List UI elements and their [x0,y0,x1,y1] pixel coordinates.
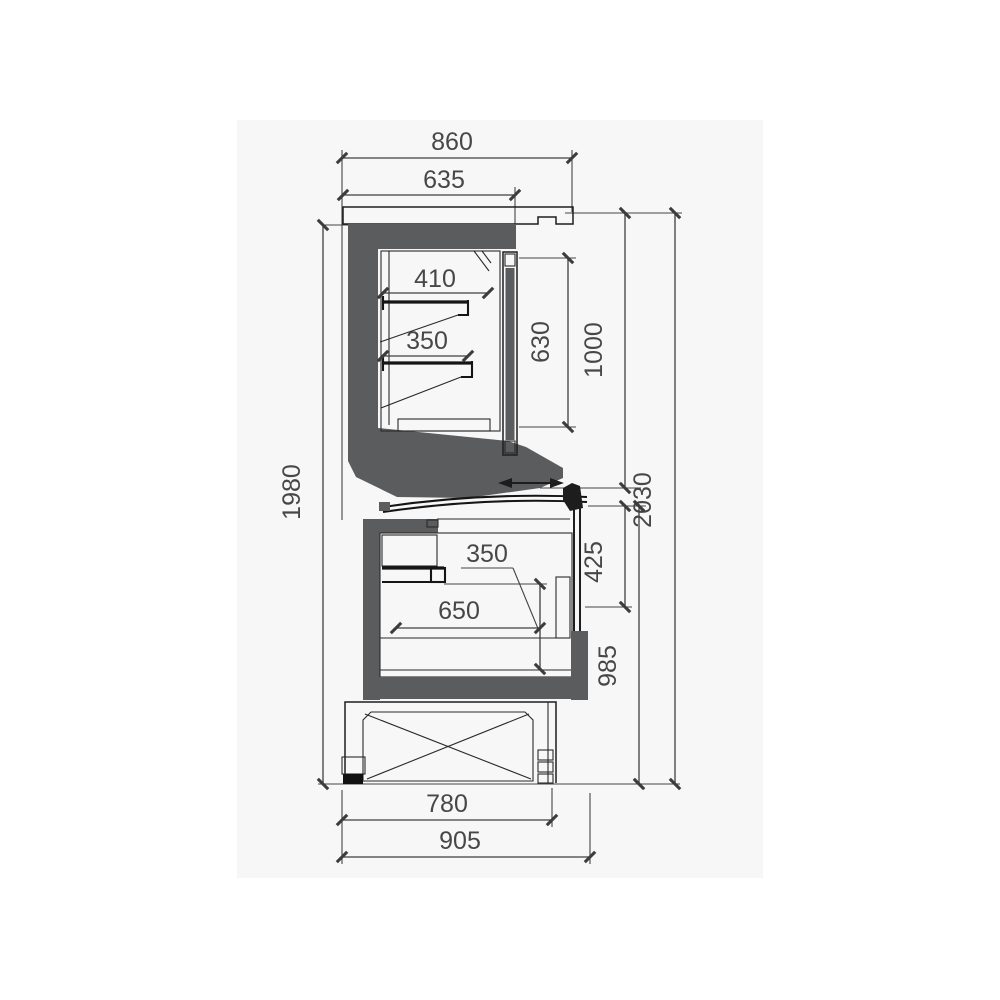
dim-1980-label: 1980 [278,464,306,520]
rear-wall [348,224,378,460]
dim-630-label: 630 [527,321,555,363]
dim-1000-label: 1000 [580,322,608,378]
dim-860-label: 860 [431,128,473,156]
dim-425-label: 425 [580,541,608,583]
lid-left-cap [379,502,390,511]
foot [343,774,363,784]
lower-bottom-band [363,677,588,699]
dim-2030-label: 2030 [629,472,657,528]
dim-650-label: 650 [438,597,480,625]
page: 860 635 410 350 630 1000 2030 1980 [0,0,1000,1000]
dim-350-shelf-label: 350 [406,327,448,355]
technical-drawing: 860 635 410 350 630 1000 2030 1980 [0,0,1000,1000]
dim-985-label: 985 [594,645,622,687]
dim-905-label: 905 [439,827,481,855]
dim-635-label: 635 [423,166,465,194]
dim-410-label: 410 [414,265,456,293]
lower-rear-wall [363,519,380,700]
dim-780-label: 780 [426,790,468,818]
dim-350-well-label: 350 [466,540,508,568]
